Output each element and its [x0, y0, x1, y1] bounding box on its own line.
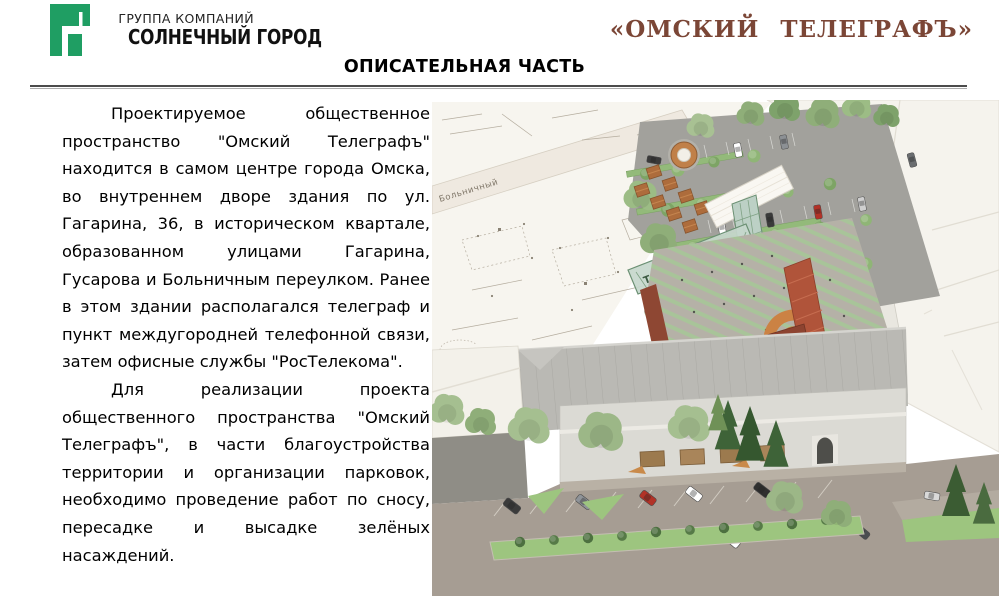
- round-pavilion: [668, 139, 700, 171]
- logo-company-name: СОЛНЕЧНЫЙ ГОРОД: [128, 26, 254, 48]
- sun-city-logo-icon: [50, 4, 90, 56]
- paragraph-1: Проектируемое общественное пространство …: [62, 100, 430, 376]
- aerial-render-illustration: Больничный: [432, 100, 999, 596]
- description-text: Проектируемое общественное пространство …: [62, 100, 430, 569]
- company-logo: ГРУППА КОМПАНИЙ СОЛНЕЧНЫЙ ГОРОД: [50, 4, 254, 56]
- entrance-arch: [812, 434, 838, 466]
- document-page: ГРУППА КОМПАНИЙ СОЛНЕЧНЫЙ ГОРОД «ОМСКИЙ …: [0, 0, 999, 616]
- logo-text: ГРУППА КОМПАНИЙ СОЛНЕЧНЫЙ ГОРОД: [104, 4, 254, 48]
- aerial-render-svg: Больничный: [432, 100, 999, 596]
- header-divider: [30, 85, 967, 89]
- page-title: ОПИСАТЕЛЬНАЯ ЧАСТЬ: [0, 57, 929, 77]
- logo-group-label: ГРУППА КОМПАНИЙ: [104, 12, 254, 26]
- shaded-yard: [432, 432, 528, 504]
- project-title: «ОМСКИЙ ТЕЛЕГРАФЪ»: [610, 16, 973, 43]
- paragraph-2: Для реализации проекта общественного про…: [62, 376, 430, 569]
